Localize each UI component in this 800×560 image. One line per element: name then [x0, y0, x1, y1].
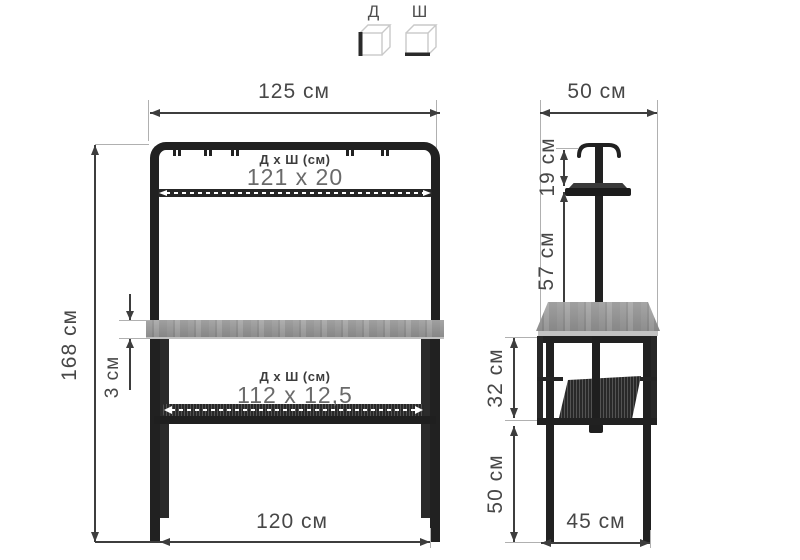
rail-hook — [381, 150, 384, 156]
dim-front-top-width-label: 125 см — [244, 81, 344, 103]
white-arrow-right — [415, 406, 423, 414]
front-right-rear-leg — [421, 337, 430, 518]
side-center-post — [592, 336, 600, 430]
front-left-rear-leg — [160, 337, 169, 518]
lower-shelf-size: 112 x 12,5 — [215, 383, 375, 407]
ext-line — [650, 530, 651, 548]
dim-rail-shelf-label: 19 см — [537, 117, 559, 217]
dim-front-height-line — [94, 145, 96, 542]
rail-hook — [204, 150, 207, 156]
dim-front-bottom-width-label: 120 см — [212, 511, 372, 533]
ext-line — [95, 144, 149, 145]
dim-front-bottom-width-line — [160, 541, 430, 543]
dim-side-depth-line — [540, 112, 657, 114]
ext-line — [430, 528, 431, 548]
front-left-post — [150, 336, 160, 542]
ext-line — [556, 148, 578, 149]
lower-shelf-dashes — [171, 409, 416, 411]
front-desktop — [146, 320, 444, 339]
legend: Д Ш — [340, 0, 460, 60]
legend-width-label: Ш — [400, 1, 440, 23]
white-arrow-right — [423, 190, 431, 196]
rail-hook — [386, 150, 389, 156]
length-cube-icon — [357, 22, 393, 56]
dim-front-height-label: 168 см — [59, 295, 81, 395]
legend-length-label: Д — [354, 1, 394, 23]
side-shelf-bar — [565, 188, 631, 196]
side-mid-rail-left — [537, 377, 563, 381]
dim-side-bottom-depth-line — [541, 542, 650, 544]
ext-line — [657, 100, 658, 333]
technical-drawing: Д Ш 125 см — [0, 0, 800, 560]
dim-shelf2-floor-label: 50 см — [485, 434, 507, 534]
dim-desk-shelf2-line — [513, 338, 515, 418]
dim-shelf-desk-label: 57 см — [536, 211, 558, 311]
upper-shelf-size: 121 x 20 — [215, 165, 375, 189]
side-stretcher — [537, 418, 657, 425]
dim-thickness-arrow-top — [129, 294, 131, 320]
side-desktop — [536, 302, 660, 332]
white-arrow-left — [159, 190, 167, 196]
dim-front-top-width-line — [150, 112, 440, 114]
upper-shelf-dashes — [166, 192, 424, 194]
rail-hook — [173, 150, 176, 156]
front-stretcher — [154, 416, 436, 424]
white-arrow-left — [164, 406, 172, 414]
side-upper-post — [595, 146, 603, 308]
upper-shelf — [158, 189, 432, 197]
ext-line — [505, 542, 541, 543]
front-right-post — [430, 336, 440, 542]
dim-shelf2-floor-line — [513, 426, 515, 542]
rail-hook — [178, 150, 181, 156]
ext-line — [505, 420, 537, 421]
dim-rail-shelf-line — [563, 150, 565, 186]
dim-desk-shelf2-label: 32 см — [485, 328, 507, 428]
ext-line — [119, 320, 150, 321]
ext-line — [95, 541, 160, 543]
dim-side-depth-label: 50 см — [547, 81, 647, 103]
dim-thickness-arrow-bottom — [129, 339, 131, 390]
ext-line — [148, 100, 149, 141]
rail-hook — [209, 150, 212, 156]
dim-thickness-label: 3 см — [102, 327, 124, 427]
dim-side-bottom-depth-label: 45 см — [546, 511, 646, 533]
side-center-post-foot — [589, 424, 603, 433]
width-cube-icon — [403, 22, 439, 56]
